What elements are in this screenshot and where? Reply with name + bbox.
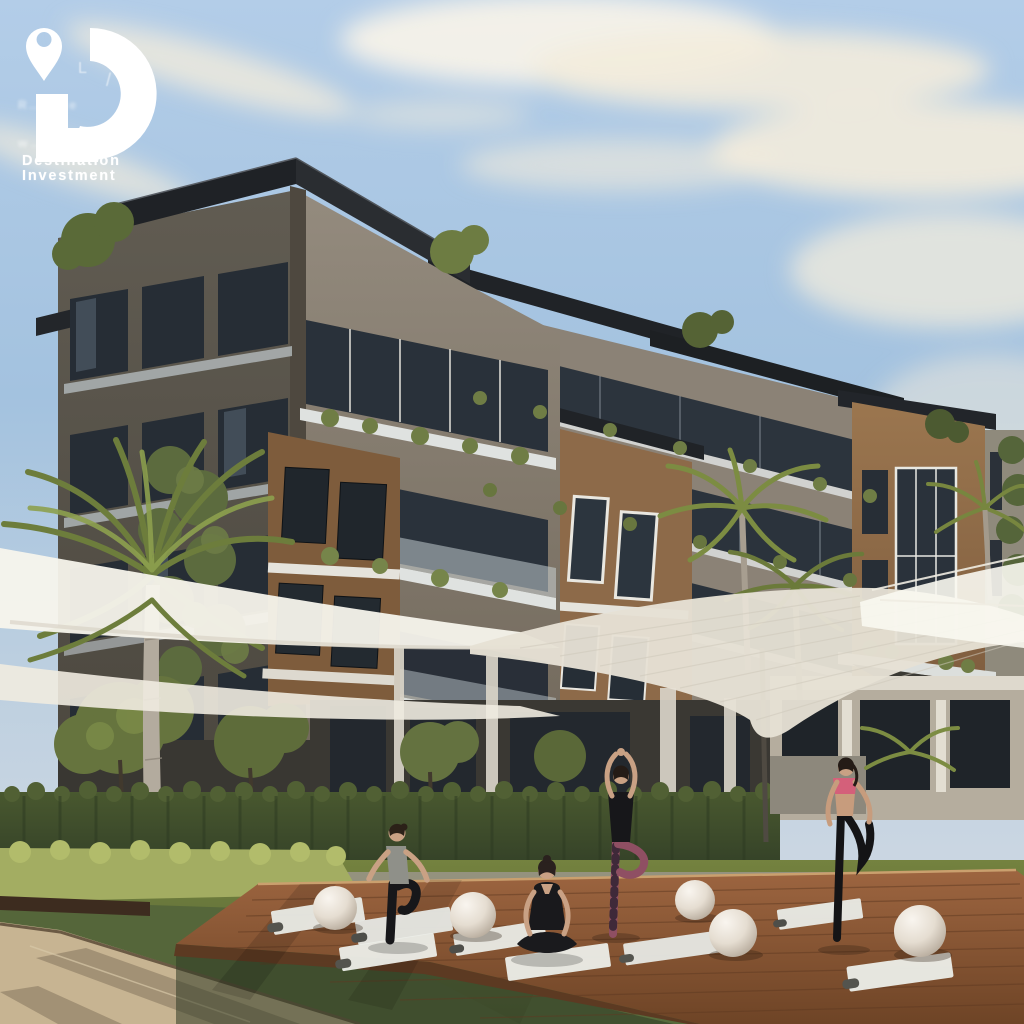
watermark-logo: L / R…ance w………m Destination Investment: [6, 6, 246, 216]
render-image: L / R…ance w………m Destination Investment: [0, 0, 1024, 1024]
logo-d-stem: [36, 94, 106, 162]
brand-name: Destination Investment: [22, 154, 121, 184]
location-pin-icon: [26, 28, 62, 81]
brand-line1: Destination: [22, 154, 121, 169]
brand-line2: Investment: [22, 169, 121, 184]
